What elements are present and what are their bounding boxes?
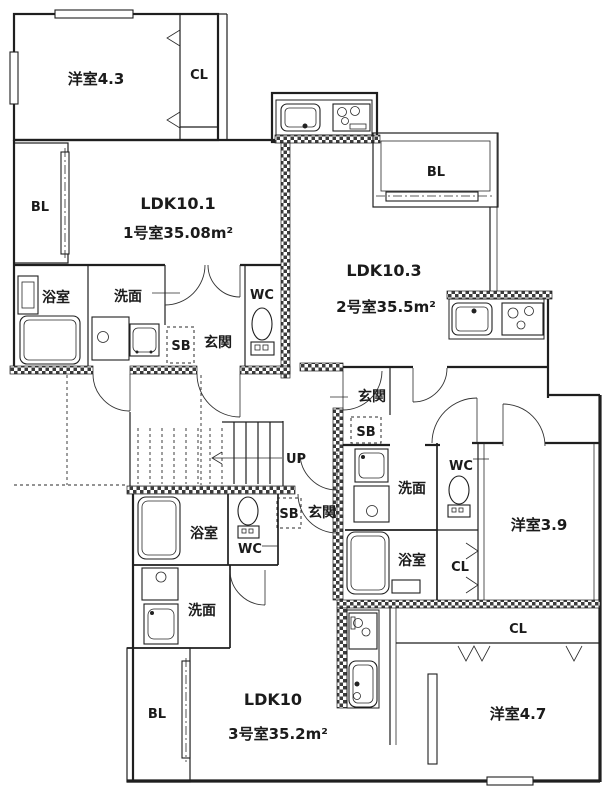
toilet-icon <box>251 308 274 355</box>
label-unit2-ldk: LDK10.3 <box>346 261 421 280</box>
label-unit2-entrance: 玄関 <box>358 388 386 405</box>
label-unit3-wc: WC <box>238 542 262 557</box>
label-unit3-closet: CL <box>509 622 527 637</box>
sliding-window-icon <box>386 192 478 201</box>
label-unit1-closet: CL <box>190 68 208 83</box>
kitchen-sink-icon <box>281 104 320 131</box>
label-unit3-entrance: 玄関 <box>308 504 336 521</box>
sliding-door-icon <box>428 674 437 764</box>
label-unit1-entrance: 玄関 <box>204 334 232 351</box>
floor-plan-page: 洋室4.3 CL BL LDK10.1 1号室35.08m² 浴室 洗面 WC … <box>0 0 613 800</box>
staircase <box>138 421 283 486</box>
label-stairs-up: UP <box>286 452 306 467</box>
label-unit3-ldk: LDK10 <box>244 690 302 709</box>
label-unit1-bath: 浴室 <box>42 289 70 306</box>
toilet-icon <box>238 497 259 538</box>
stove-icon <box>333 104 370 131</box>
label-unit2-closet: CL <box>451 560 469 575</box>
label-unit1-ldk: LDK10.1 <box>140 194 215 213</box>
kitchen-sink-icon <box>349 661 377 707</box>
label-unit3-washroom: 洗面 <box>188 602 216 619</box>
label-unit1-wc: WC <box>250 288 274 303</box>
label-unit1-balcony: BL <box>31 200 49 215</box>
kitchen-counter-unit3 <box>347 610 379 708</box>
window-icon <box>55 10 133 18</box>
vanity-sink-icon <box>355 449 388 482</box>
washer-pan-icon <box>354 486 389 522</box>
bathtub-icon <box>138 497 180 559</box>
label-unit2-balcony: BL <box>427 165 445 180</box>
stove-icon <box>349 613 377 649</box>
floor-plan-drawing: 洋室4.3 CL BL LDK10.1 1号室35.08m² 浴室 洗面 WC … <box>0 0 613 800</box>
vanity-sink-icon <box>130 324 159 356</box>
stove-icon <box>502 303 543 335</box>
window-icon <box>487 777 533 785</box>
label-unit3-area: 3号室35.2m² <box>228 725 328 743</box>
label-unit2-washroom: 洗面 <box>398 480 426 497</box>
kitchen-sink-icon <box>452 303 492 335</box>
washer-pan-icon <box>142 568 178 600</box>
label-unit2-western-room: 洋室3.9 <box>511 516 568 534</box>
label-unit3-western-room: 洋室4.7 <box>490 705 547 723</box>
label-unit3-balcony: BL <box>148 707 166 722</box>
label-unit3-shoe-box: SB <box>279 507 298 522</box>
label-unit1-shoe-box: SB <box>171 339 190 354</box>
label-unit1-western-room: 洋室4.3 <box>68 70 125 88</box>
label-unit3-bath: 浴室 <box>190 525 218 542</box>
label-unit1-area: 1号室35.08m² <box>123 224 233 242</box>
label-unit1-washroom: 洗面 <box>114 288 142 305</box>
washer-pan-icon <box>92 317 129 360</box>
kitchen-counter-unit1 <box>276 100 372 135</box>
label-unit2-wc: WC <box>449 459 473 474</box>
label-unit2-shoe-box: SB <box>356 425 375 440</box>
kitchen-counter-unit2 <box>449 299 544 339</box>
toilet-icon <box>448 476 470 517</box>
vanity-sink-icon <box>144 604 178 644</box>
label-unit2-bath: 浴室 <box>398 552 426 569</box>
eave-outline <box>14 375 201 485</box>
label-unit2-area: 2号室35.5m² <box>336 298 436 316</box>
window-icon <box>10 52 18 104</box>
